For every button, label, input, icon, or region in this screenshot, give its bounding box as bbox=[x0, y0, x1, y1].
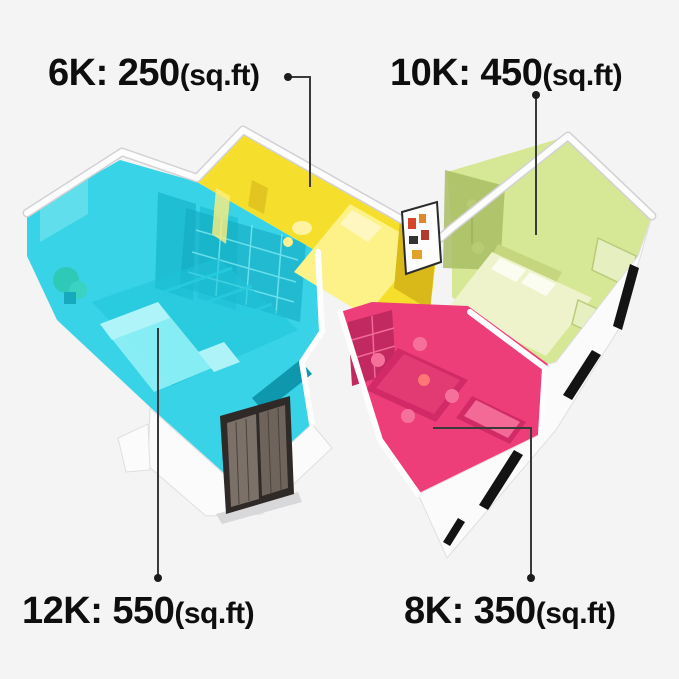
plant-pot bbox=[64, 292, 76, 304]
label-6k-unit: (sq.ft) bbox=[180, 59, 260, 92]
book bbox=[408, 218, 416, 229]
leader-dot-icon bbox=[284, 73, 292, 81]
label-12k-coverage: 12K: 550(sq.ft) bbox=[22, 592, 254, 630]
label-10k-unit: (sq.ft) bbox=[542, 59, 622, 92]
entry-door bbox=[216, 396, 302, 524]
book bbox=[409, 236, 418, 244]
bedside-table bbox=[472, 242, 484, 254]
leader-dot-icon bbox=[527, 574, 535, 582]
label-6k-coverage: 6K: 250(sq.ft) bbox=[48, 54, 260, 92]
stool bbox=[283, 237, 293, 247]
label-12k-unit: (sq.ft) bbox=[174, 597, 254, 630]
book bbox=[421, 230, 429, 240]
mini-bookshelf bbox=[402, 202, 441, 274]
label-6k-text: 6K: 250 bbox=[48, 52, 180, 94]
label-10k-text: 10K: 450 bbox=[390, 52, 542, 94]
label-8k-coverage: 8K: 350(sq.ft) bbox=[404, 592, 616, 630]
book bbox=[419, 214, 426, 223]
round-table bbox=[292, 221, 312, 235]
book bbox=[412, 250, 422, 259]
label-8k-text: 8K: 350 bbox=[404, 590, 536, 632]
chair bbox=[371, 353, 385, 367]
entrance-step bbox=[118, 424, 150, 472]
chair bbox=[445, 389, 459, 403]
chair bbox=[401, 409, 415, 423]
door-panel-left bbox=[227, 414, 259, 507]
label-10k-coverage: 10K: 450(sq.ft) bbox=[390, 54, 622, 92]
table-decor bbox=[418, 374, 430, 386]
coverage-floorplan-diagram: 6K: 250(sq.ft) 10K: 450(sq.ft) 12K: 550(… bbox=[0, 0, 679, 679]
leader-dot-icon bbox=[154, 574, 162, 582]
door-panel-right bbox=[259, 405, 288, 496]
floorplan-illustration bbox=[0, 0, 679, 679]
label-8k-unit: (sq.ft) bbox=[536, 597, 616, 630]
label-12k-text: 12K: 550 bbox=[22, 590, 174, 632]
chair bbox=[413, 337, 427, 351]
